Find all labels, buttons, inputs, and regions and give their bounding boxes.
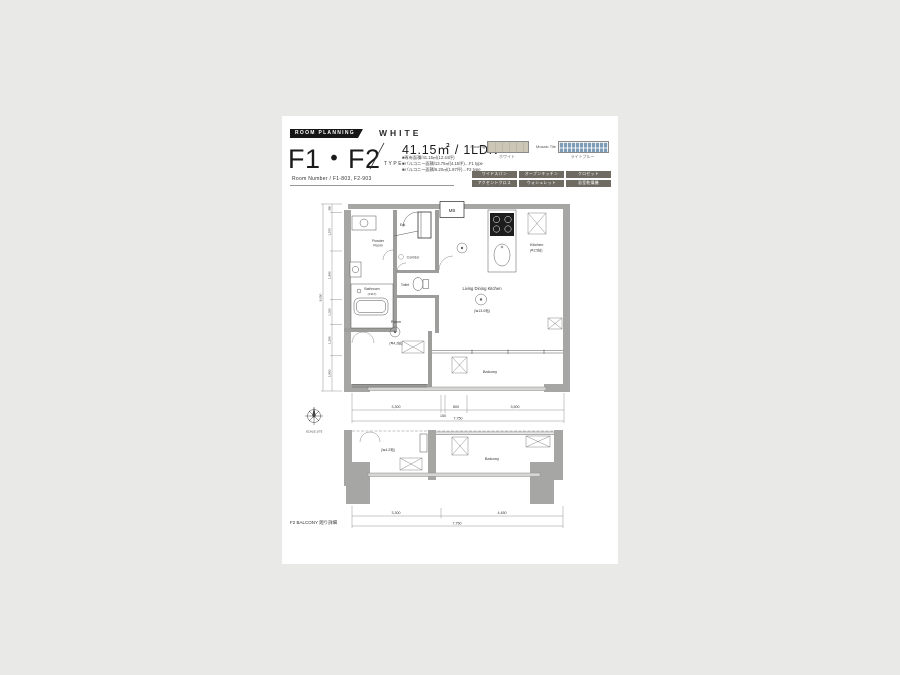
floor-plan-page: { "page": { "background": "#e9e9e7", "pa… <box>0 0 900 675</box>
feature-chip: ウォシュレット <box>519 180 564 187</box>
f2-balcony-window <box>436 432 554 434</box>
powder-room-label-2: Room <box>373 244 382 248</box>
powder-door-arc <box>383 250 393 260</box>
ac-spot-balcony <box>452 357 467 373</box>
ac-spot-ldk <box>548 318 562 329</box>
ldk-symbol-dot <box>480 298 482 300</box>
toilet <box>413 278 429 291</box>
kitchen-size-label: (≒2.5帖) <box>530 248 542 253</box>
dim-left-350: 350 <box>328 205 332 210</box>
plan-sheet: ROOM PLANNING WHITE F1・F2 TYPE 41.15㎡ / … <box>282 116 618 564</box>
f2-room-shelf <box>420 434 427 452</box>
dim-left-1850: 1,850 <box>328 369 332 377</box>
main-floor-plan: MB Ent. Powder Room Bathroom (1317) <box>282 200 618 435</box>
feature-chip: オープンキッチン <box>519 171 564 178</box>
room-number-line: Room Number / F1-803, F2-903 <box>290 176 454 186</box>
corridor-label: Corridor <box>407 256 420 260</box>
dim-total-7750: 7,750 <box>454 417 463 421</box>
dim-left-1280: 1,280 <box>328 336 332 344</box>
dim-left-1020: 1,020 <box>328 308 332 316</box>
mosaic-tile-name: ライトブルー <box>558 154 607 160</box>
ent-label: Ent. <box>400 223 406 227</box>
kitchen <box>488 210 516 272</box>
bathroom-size-label: (1317) <box>368 292 377 296</box>
plan-code-suffix: TYPE <box>384 161 403 167</box>
f2-walls <box>344 430 563 504</box>
f2-room-size-label: (≒4.2帖) <box>381 447 395 452</box>
flooring-swatch <box>487 141 529 153</box>
f2-ac-spot <box>452 437 468 455</box>
room-label: Room <box>391 320 401 324</box>
meter-box: MB <box>440 202 464 218</box>
bathroom-label: Bathroom <box>364 287 379 291</box>
dim-3500: 3,500 <box>511 405 520 409</box>
ldk-size-label: (≒13.0帖) <box>474 308 490 313</box>
ldk-label: Living Dining Kitchen <box>462 286 502 291</box>
f2-dim-3300: 3,300 <box>392 511 401 515</box>
dim-left-1570: 1,570 <box>328 228 332 236</box>
room-doors <box>352 332 374 343</box>
feature-chip: アクセントクロス <box>472 180 517 187</box>
balcony-label: Balcony <box>483 369 497 374</box>
feature-chip: ワイドスパン <box>472 171 517 178</box>
powder-room <box>350 216 376 277</box>
toilet-label: Toilet <box>401 283 409 287</box>
ldk-balcony-window <box>432 350 563 355</box>
f2-room-doors <box>360 432 380 442</box>
f2-xbox-right <box>526 436 550 447</box>
room-symbol-dot <box>394 331 396 333</box>
color-scheme-label: WHITE <box>379 128 421 138</box>
dim-800: 800 <box>453 405 459 409</box>
compass-icon <box>305 407 323 425</box>
refrigerator-space <box>528 213 546 234</box>
balcony-rail <box>368 387 546 391</box>
f2-balcony-label: Balcony <box>485 456 499 461</box>
feature-chip: クロゼット <box>566 171 611 178</box>
corridor-door-arc <box>439 256 453 270</box>
f2-dim-4450: 4,450 <box>498 511 507 515</box>
feature-chip: 浴室乾燥機 <box>566 180 611 187</box>
room-closet <box>402 341 424 353</box>
mb-label: MB <box>449 208 456 213</box>
corridor-symbol <box>399 254 404 259</box>
f2-dim-total: 7,750 <box>453 522 462 526</box>
flooring-name: ホワイト <box>487 154 527 160</box>
ldk-symbol-upper-dot <box>461 247 463 249</box>
mosaic-tile-swatch <box>558 141 609 153</box>
flooring-label: Flooring <box>460 144 485 149</box>
f2-caption: F2 BALCONY 廻り詳細 <box>290 519 338 526</box>
dim-left-1980: 1,980 <box>328 271 332 279</box>
area-notes: ■専有面積/41.15㎡(12.44坪) ■バルコニー面積/13.75㎡(4.1… <box>402 155 483 173</box>
powder-room-label-1: Powder <box>372 239 385 243</box>
note-line: ■バルコニー面積/6.20㎡(1.87坪)…F2 type <box>402 167 483 173</box>
mosaic-tile-label: Mosaic Tile <box>530 144 556 149</box>
f2-balcony-rail <box>368 473 540 477</box>
feature-chip-list: ワイドスパン オープンキッチン クロゼット アクセントクロス ウォシュレット 浴… <box>472 171 612 187</box>
dim-150: 150 <box>440 414 446 418</box>
f2-balcony-plan: (≒4.2帖) Balcony <box>282 428 618 540</box>
f2-room-closet <box>400 458 422 470</box>
dim-3300: 3,300 <box>392 405 401 409</box>
dim-left-total: 8,050 <box>319 293 323 301</box>
room-size-label: (≒4.2帖) <box>389 341 402 346</box>
kitchen-label: Kitchen <box>530 242 543 247</box>
plan-code: F1・F2 <box>288 137 381 176</box>
